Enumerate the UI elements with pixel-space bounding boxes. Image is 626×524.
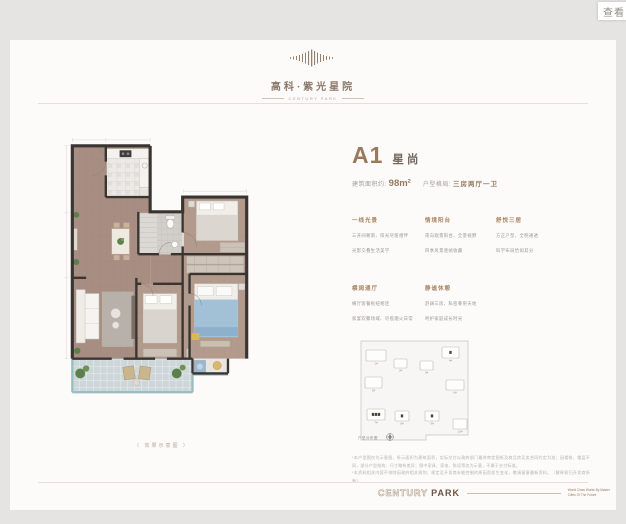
building-label: 4#: [449, 358, 453, 362]
disclaimer: *本户型图仅为示意图，所示面积为建筑面积，实际交付以政府部门最终审定图纸及商品房…: [352, 454, 590, 484]
feature-title: 横阔通厅: [352, 284, 425, 292]
footer-taglines: World Class Works By Master Cities Of Th…: [568, 488, 610, 498]
a1-unit-marker: [449, 351, 451, 354]
building-label: 8#: [400, 421, 404, 425]
area-label: 建筑面积约:: [352, 179, 387, 188]
feature-title: 静谧休憩: [425, 284, 496, 292]
building-label: 2#: [399, 368, 403, 372]
feature-block: 静谧休憩 舒阔三房、私密尊崇天地 呵护家庭成长时光: [425, 284, 496, 332]
building-label: 3#: [425, 370, 429, 374]
feature-line: 南向观景阳台、全景视野: [425, 233, 496, 239]
building-label: 5#: [372, 388, 376, 392]
feature-line: 呵护家庭成长时光: [425, 316, 496, 322]
building-footprint: [365, 377, 382, 388]
brochure-page: 高科·紫光星院 CENTURY PARK: [10, 40, 616, 510]
building-label: 7#: [374, 420, 378, 424]
logo-bars-icon: [290, 49, 336, 67]
feature-title: 情境阳台: [425, 216, 496, 224]
feature-line: 四季风景逐帧收藏: [425, 248, 496, 254]
feature-title: 舒悦三居: [496, 216, 598, 224]
footer-tagline-2: Cities Of The Future: [568, 493, 597, 497]
unit-title: A1 星尚: [352, 142, 421, 169]
feature-line: 科学布局恰如其分: [496, 248, 598, 254]
footer-tagline-1: World Class Works By Master: [568, 488, 610, 492]
site-plan: 1#2#3#4#5#6#7#8#9#10# 户型分布图: [354, 336, 476, 448]
header-divider: [38, 103, 588, 104]
building-footprint: [420, 361, 433, 370]
unit-info-column: A1 星尚 建筑面积约: 98m² 户型格局: 三房两厅一卫 一线光景 三开间朝…: [352, 140, 600, 506]
building-footprint: [446, 380, 464, 390]
page-footer: CENTURY PARK World Class Works By Master…: [378, 488, 610, 498]
feature-line: 三开间朝南、阳光尽揽相伴: [352, 233, 425, 239]
site-plan-caption: 户型分布图: [358, 435, 378, 440]
building-label: 6#: [453, 390, 457, 394]
page-header: 高科·紫光星院 CENTURY PARK: [10, 49, 616, 101]
plan-caption: （ 效果示意图 ）: [62, 442, 262, 449]
feature-block: 一线光景 三开间朝南、阳光尽揽相伴 光影交叠生活美学: [352, 216, 425, 264]
a1-unit-marker: [401, 414, 403, 417]
feature-line: 方正户型、全明通透: [496, 233, 598, 239]
unit-specs: 建筑面积约: 98m² 户型格局: 三房两厅一卫: [352, 178, 498, 189]
area-value: 98m²: [389, 178, 411, 189]
footer-brand-solid: PARK: [431, 488, 460, 498]
unit-name: 星尚: [392, 151, 421, 167]
a1-unit-marker: [375, 413, 377, 416]
building-footprint: [394, 359, 407, 368]
feature-line: 舒阔三房、私密尊崇天地: [425, 301, 496, 307]
feature-block: 横阔通厅 横厅客餐枢纽相连 家宴欢聚场域、尽揽烟火日常: [352, 284, 425, 332]
feature-line: 横厅客餐枢纽相连: [352, 301, 425, 307]
feature-title: 一线光景: [352, 216, 425, 224]
disclaimer-line: *本户型图仅为示意图，所示面积为建筑面积，实际交付以政府部门最终审定图纸及商品房…: [352, 454, 590, 469]
brand-name-cn: 高科·紫光星院: [10, 78, 616, 93]
a1-unit-marker: [431, 414, 433, 417]
feature-block: 情境阳台 南向观景阳台、全景视野 四季风景逐帧收藏: [425, 216, 496, 264]
building-footprint: [453, 419, 467, 429]
brand-name-en: CENTURY PARK: [289, 96, 338, 101]
building-label: 9#: [430, 421, 434, 425]
building-label: 10#: [457, 429, 462, 433]
footer-brand-outline: CENTURY: [378, 488, 428, 498]
browser-tooltip[interactable]: 查看: [598, 2, 626, 20]
feature-line: 光影交叠生活美学: [352, 248, 425, 254]
building-footprint: [366, 350, 386, 361]
compass-icon: [387, 434, 394, 441]
unit-code: A1: [352, 142, 383, 169]
feature-line: 家宴欢聚场域、尽揽烟火日常: [352, 316, 425, 322]
footer-divider: [38, 482, 588, 483]
feature-block: 舒悦三居 方正户型、全明通透 科学布局恰如其分: [496, 216, 598, 264]
feature-grid: 一线光景 三开间朝南、阳光尽揽相伴 光影交叠生活美学 情境阳台 南向观景阳台、全…: [352, 216, 598, 332]
floor-plan-column: （ 效果示意图 ）: [62, 136, 262, 449]
layout-label: 户型格局:: [423, 179, 451, 188]
tooltip-label: 查看: [603, 4, 625, 19]
building-label: 1#: [374, 361, 378, 365]
footer-rule: [467, 493, 561, 494]
layout-value: 三房两厅一卫: [453, 178, 498, 188]
floor-plan: [62, 136, 258, 402]
a1-unit-marker: [372, 413, 374, 416]
a1-unit-marker: [378, 413, 380, 416]
